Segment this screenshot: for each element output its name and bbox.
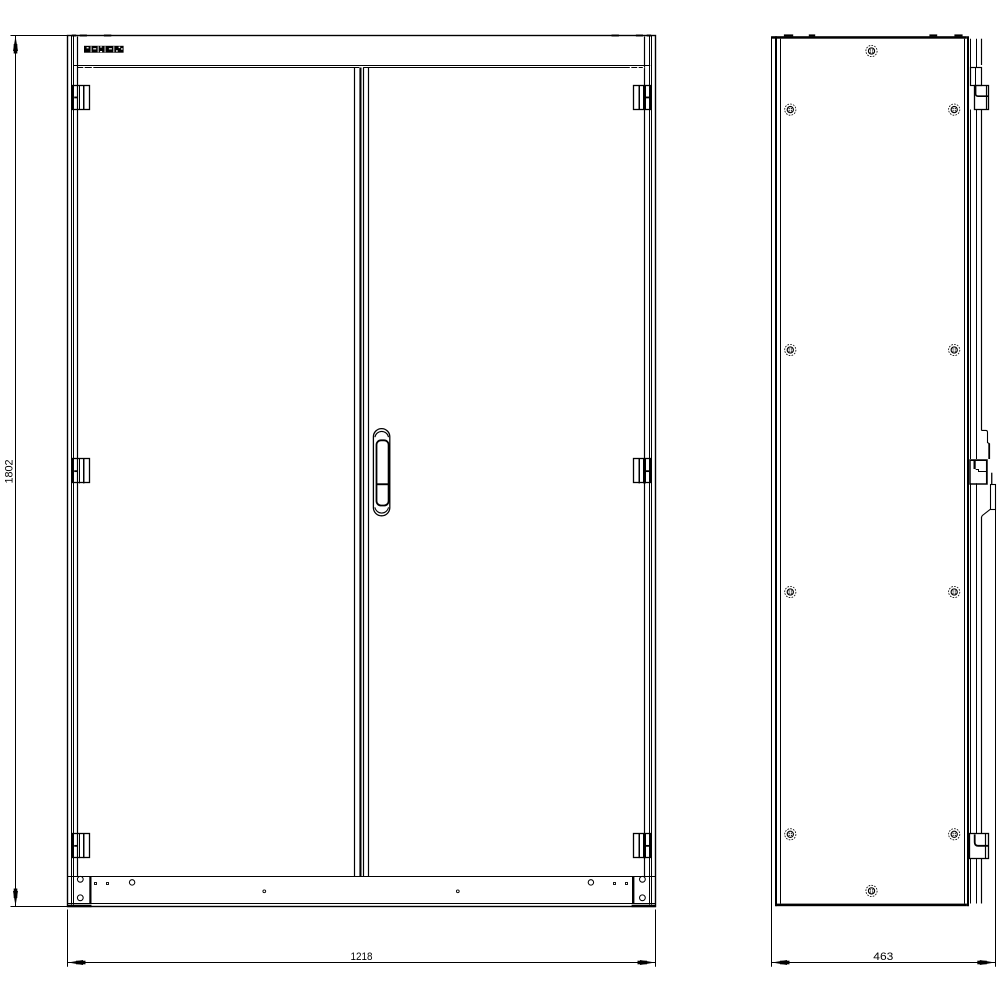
svg-text:1802: 1802 xyxy=(4,460,16,484)
svg-text:1218: 1218 xyxy=(351,951,373,963)
svg-text:463: 463 xyxy=(873,951,893,963)
